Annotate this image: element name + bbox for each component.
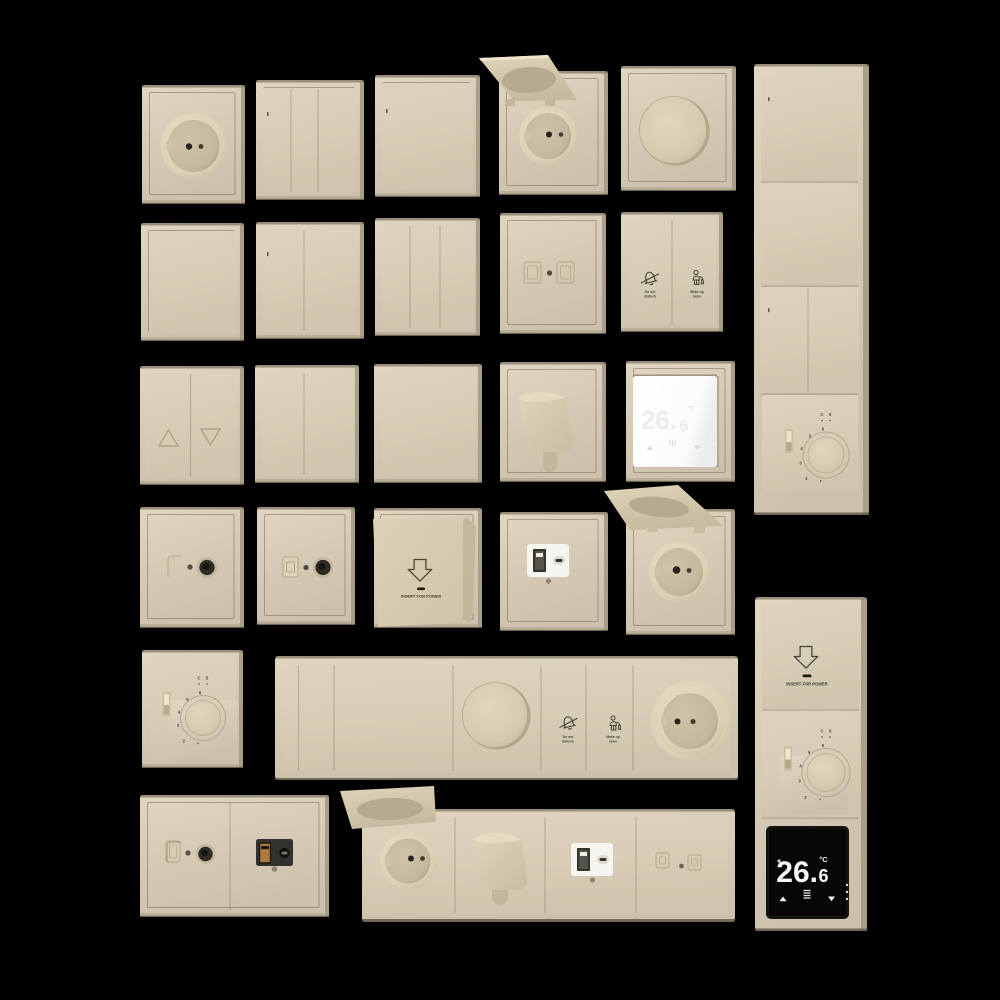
svg-text:6: 6 [818, 866, 828, 886]
svg-text:C: C [820, 412, 823, 417]
svg-text:S: S [829, 729, 832, 734]
svg-text:Do not: Do not [645, 290, 657, 294]
svg-text:C: C [197, 676, 200, 681]
svg-text:disturb: disturb [644, 295, 656, 299]
svg-text:room: room [693, 295, 701, 299]
svg-text:26.: 26. [641, 405, 677, 435]
svg-text:INSERT FOR POWER: INSERT FOR POWER [786, 682, 827, 687]
svg-text:*: * [819, 798, 821, 803]
svg-text:Make up: Make up [606, 735, 620, 739]
svg-text:*: * [197, 742, 199, 747]
svg-text:room: room [609, 740, 617, 744]
svg-text:S: S [829, 412, 832, 417]
svg-text:disturb: disturb [562, 740, 574, 744]
svg-text:26.: 26. [776, 856, 818, 889]
svg-text:Make up: Make up [690, 290, 704, 294]
svg-text:Do not: Do not [563, 735, 575, 739]
svg-text:C: C [820, 729, 823, 734]
svg-text:*: * [820, 479, 822, 484]
svg-text:INSERT FOR POWER: INSERT FOR POWER [401, 594, 442, 599]
svg-text:S: S [206, 676, 209, 681]
svg-text:°C: °C [688, 406, 695, 412]
svg-text:°C: °C [819, 855, 828, 864]
svg-text:6: 6 [680, 418, 689, 435]
